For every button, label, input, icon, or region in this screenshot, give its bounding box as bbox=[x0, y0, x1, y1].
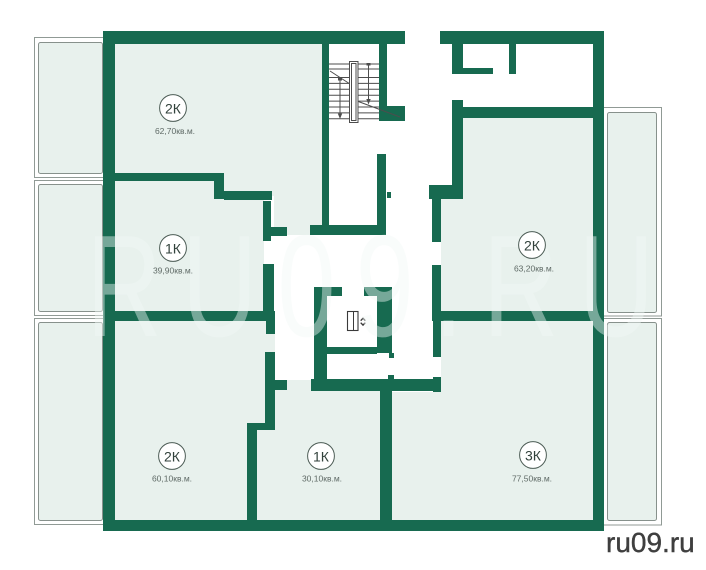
svg-text:RU09.RU: RU09.RU bbox=[86, 205, 674, 367]
svg-text:2К: 2К bbox=[524, 238, 541, 254]
svg-text:2К: 2К bbox=[165, 101, 182, 117]
svg-text:1К: 1К bbox=[165, 241, 182, 257]
svg-text:30,10кв.м.: 30,10кв.м. bbox=[302, 474, 342, 484]
svg-text:63,20кв.м.: 63,20кв.м. bbox=[514, 264, 554, 274]
svg-text:39,90кв.м.: 39,90кв.м. bbox=[153, 266, 193, 276]
svg-text:60,10кв.м.: 60,10кв.м. bbox=[152, 474, 192, 484]
svg-text:ru09.ru: ru09.ru bbox=[606, 527, 695, 558]
svg-text:3К: 3К bbox=[525, 448, 542, 464]
svg-text:77,50кв.м.: 77,50кв.м. bbox=[512, 474, 552, 484]
svg-text:2К: 2К bbox=[164, 449, 181, 465]
svg-text:62,70кв.м.: 62,70кв.м. bbox=[155, 126, 195, 136]
svg-text:1К: 1К bbox=[313, 449, 330, 465]
